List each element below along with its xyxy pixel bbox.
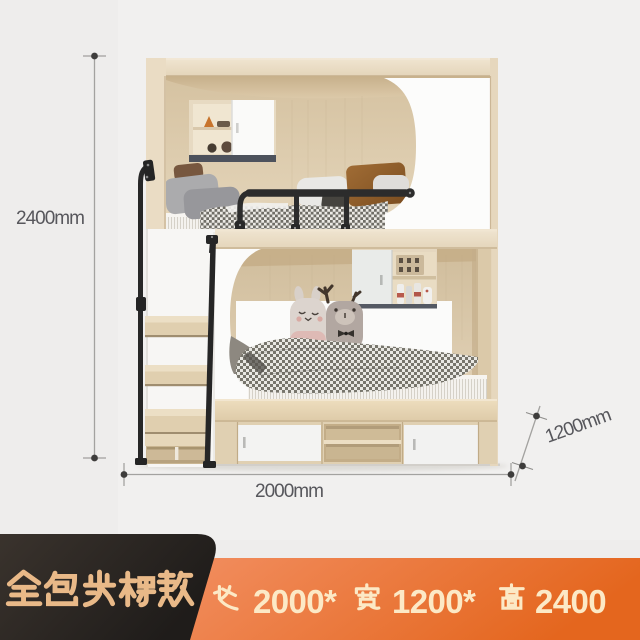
svg-text:2000*: 2000*	[253, 583, 337, 620]
svg-text:2400mm: 2400mm	[16, 208, 84, 229]
svg-text:1200*: 1200*	[392, 583, 476, 620]
svg-text:2400: 2400	[535, 583, 606, 620]
svg-text:2000mm: 2000mm	[255, 481, 323, 502]
